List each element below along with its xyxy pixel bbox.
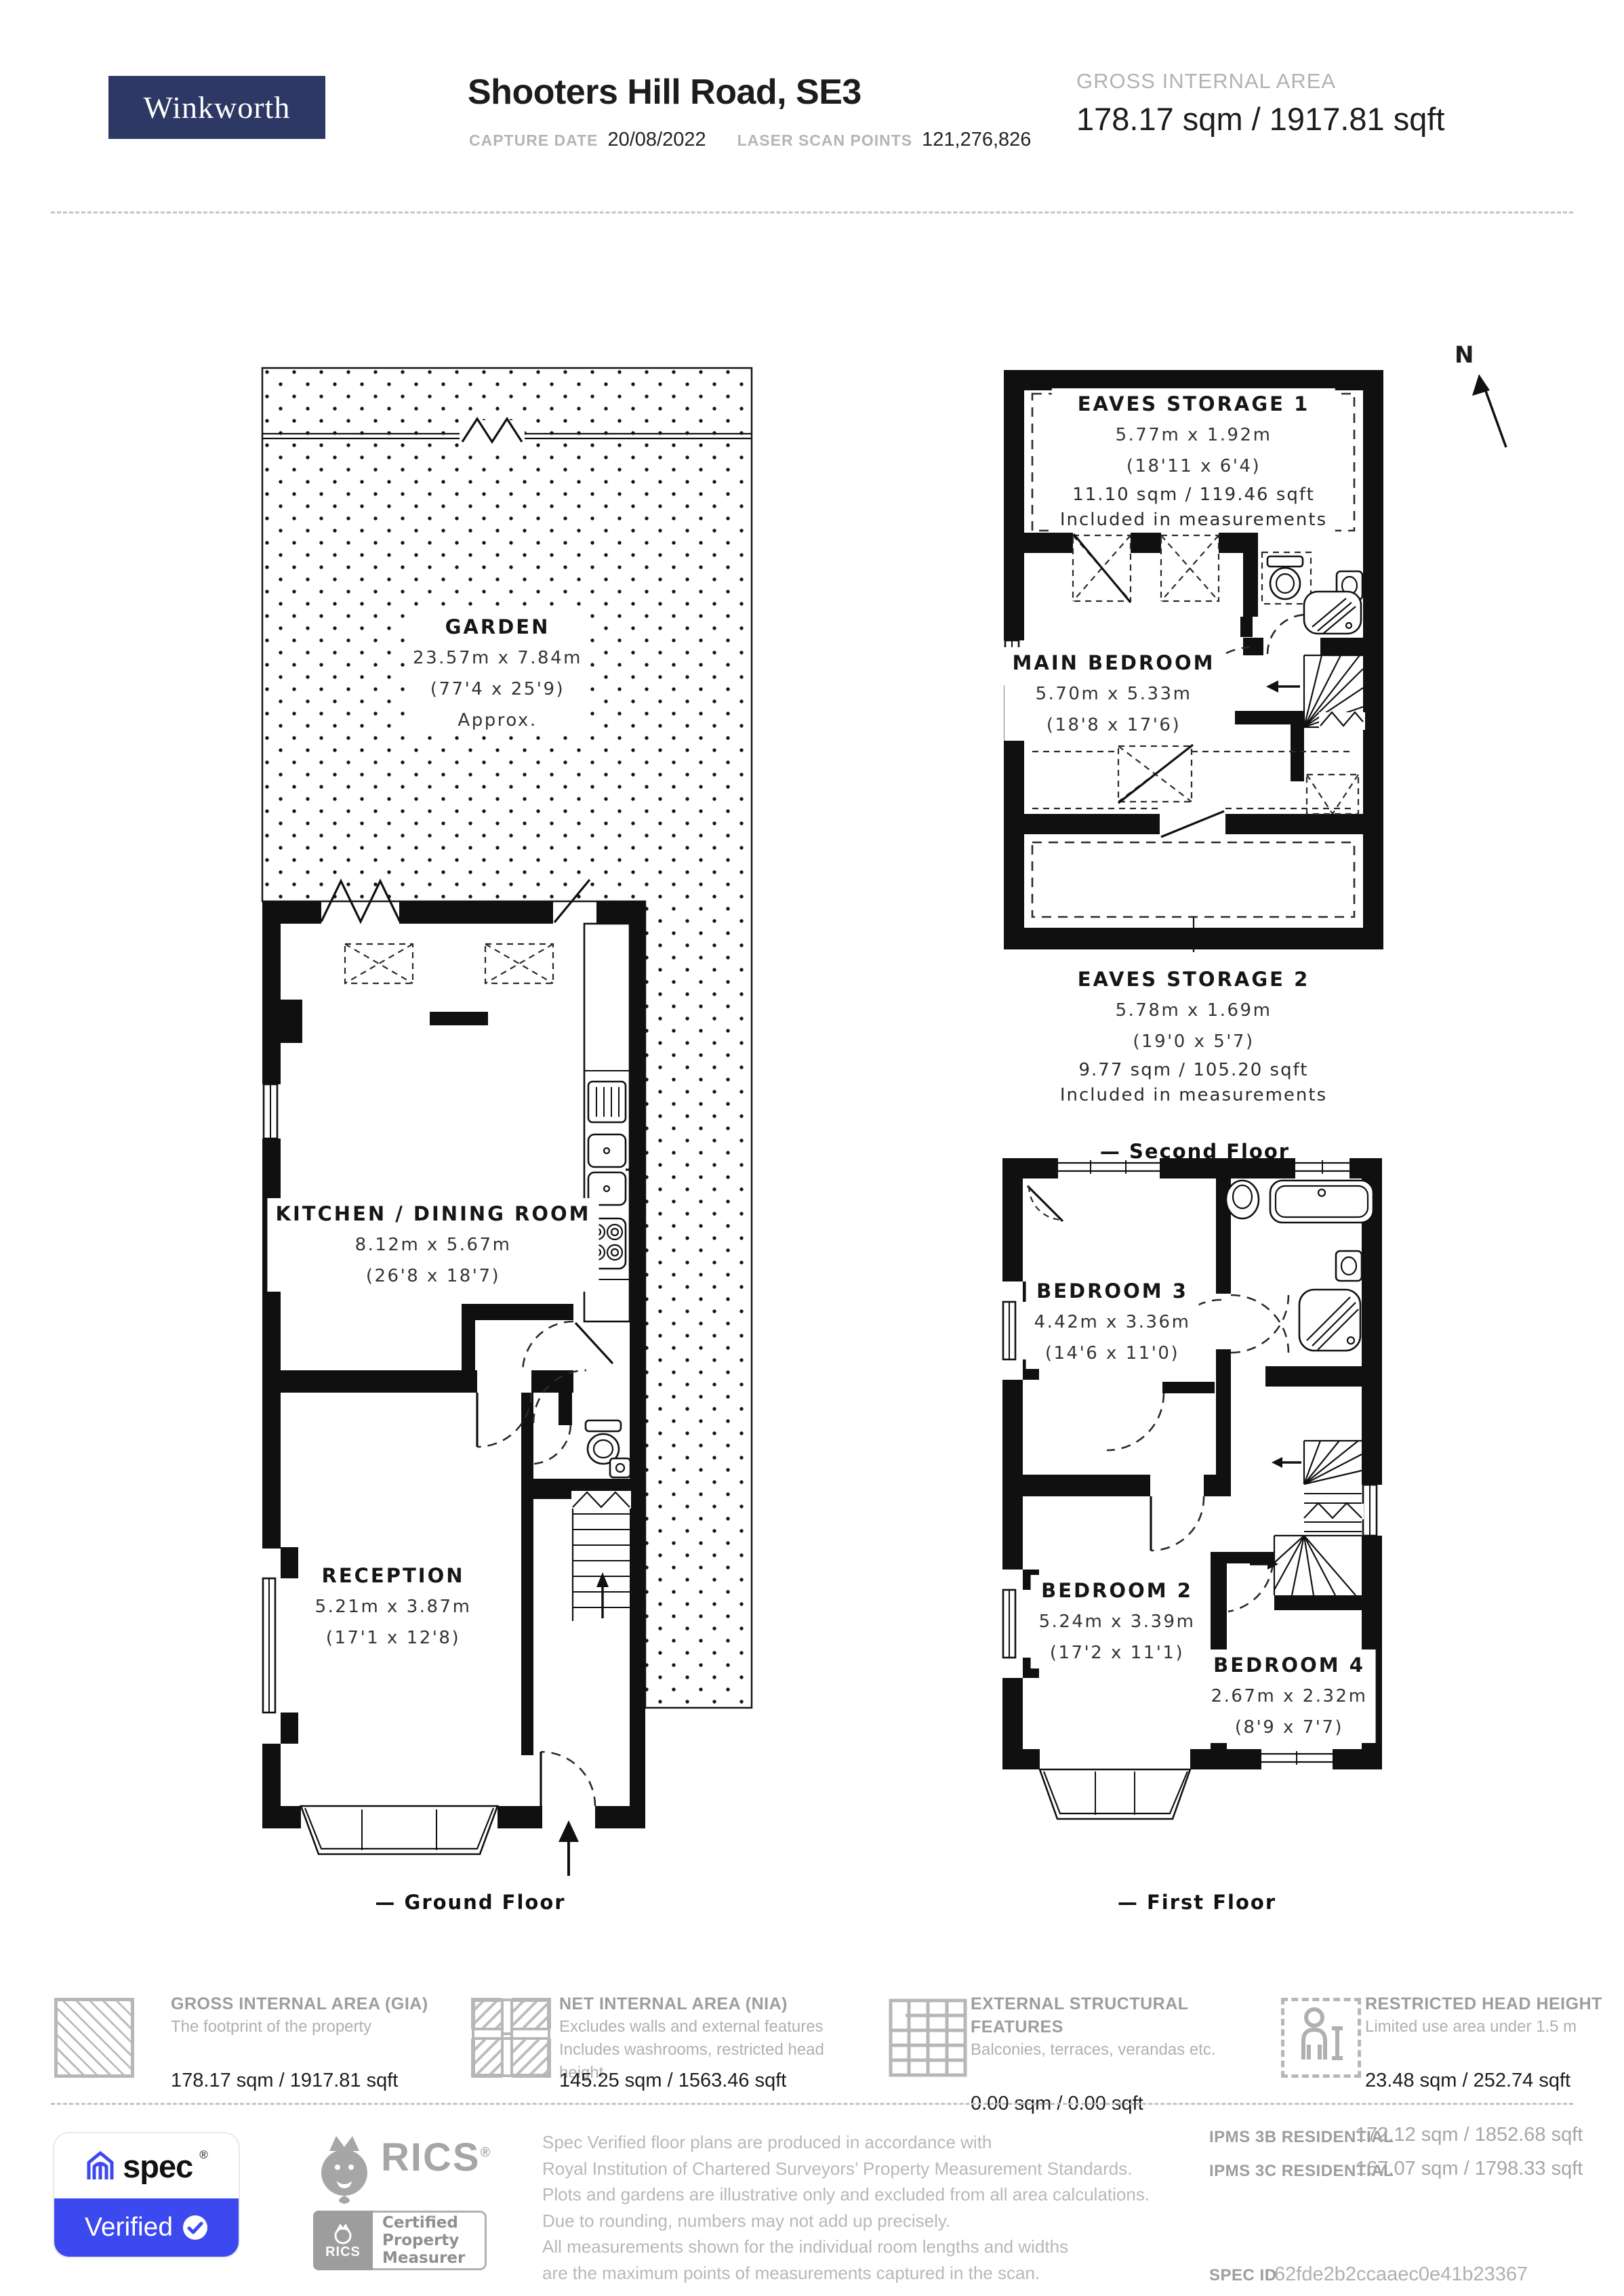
reception-label: RECEPTION 5.21m x 3.87m (17'1 x 12'8) [307, 1560, 480, 1654]
spec-brand: spec [123, 2148, 192, 2185]
stairs-icon [571, 1491, 631, 1621]
basin-icon [1336, 1251, 1362, 1281]
spec-verified-badge: spec® Verified [54, 2133, 239, 2257]
floorplan-sheet: Winkworth Shooters Hill Road, SE3 CAPTUR… [0, 0, 1624, 2296]
legend-restricted: RESTRICTED HEAD HEIGHT Limited use area … [1365, 1992, 1624, 2092]
bay-window-icon [301, 1806, 498, 1854]
gross-internal-area-value: 178.17 sqm / 1917.81 sqft [1076, 100, 1444, 138]
check-icon [182, 2215, 208, 2240]
capture-meta: CAPTURE DATE20/08/2022LASER SCAN POINTS1… [469, 129, 1062, 151]
winkworth-logo-text: Winkworth [144, 89, 291, 125]
ground-floor-plan: GARDEN 23.57m x 7.84m (77'4 x 25'9) Appr… [260, 366, 754, 1891]
bedroom2-door-arc [1151, 1496, 1204, 1551]
capture-date-value: 20/08/2022 [607, 129, 706, 150]
divider-bottom [51, 2103, 1573, 2105]
wc-door-arc [534, 1425, 571, 1464]
laser-scan-label: LASER SCAN POINTS [737, 131, 913, 149]
north-arrow-icon [1464, 371, 1518, 453]
first-floor-drawing [1000, 1156, 1394, 1854]
legend-gia: GROSS INTERNAL AREA (GIA) The footprint … [171, 1992, 462, 2092]
eaves-storage-2-label: EAVES STORAGE 2 5.78m x 1.69m (19'0 x 5'… [1052, 964, 1335, 1107]
nia-icon [471, 1998, 551, 2078]
front-door-arc [541, 1752, 595, 1806]
ipms-3b-value: 172.12 sqm / 1852.68 sqft [1356, 2124, 1583, 2146]
bath-icon [1270, 1181, 1373, 1223]
ground-floor-drawing [260, 366, 754, 1891]
wc-sink-icon [610, 1458, 630, 1477]
restricted-height-icon [1281, 1998, 1361, 2078]
disclaimer-text: Spec Verified floor plans are produced i… [542, 2129, 1166, 2286]
pedestal-sink-icon [1226, 1181, 1259, 1218]
garden-label: GARDEN 23.57m x 7.84m (77'4 x 25'9) Appr… [405, 611, 590, 736]
bathroom-door-arc [1267, 615, 1307, 654]
ground-floor-label: — Ground Floor [375, 1891, 565, 1914]
laser-scan-value: 121,276,826 [922, 129, 1031, 150]
legend-external: EXTERNAL STRUCTURAL FEATURES Balconies, … [971, 1992, 1262, 2115]
legend-nia: NET INTERNAL AREA (NIA) Excludes walls a… [559, 1992, 851, 2092]
first-floor-plan: BEDROOM 3 4.42m x 3.36m (14'6 x 11'0) BE… [1000, 1156, 1394, 1854]
first-floor-label: — First Floor [1118, 1891, 1276, 1914]
rics-mini-lion-icon [331, 2221, 354, 2244]
capture-date-label: CAPTURE DATE [469, 131, 598, 149]
corridor-door-arc [1107, 1393, 1164, 1450]
rics-brand: RICS® [381, 2135, 491, 2180]
garden-area [262, 368, 752, 1708]
toilet-icon [1262, 552, 1311, 604]
page-title: Shooters Hill Road, SE3 [468, 72, 861, 112]
spec-reg: ® [199, 2148, 208, 2162]
bedroom3-label: BEDROOM 3 4.42m x 3.36m (14'6 x 11'0) [1026, 1275, 1199, 1369]
skylight-icon [345, 944, 553, 983]
rics-badge-brand: RICS [325, 2244, 361, 2260]
bedroom4-door-arc [1228, 1563, 1273, 1612]
closet-door-icon [1028, 1186, 1063, 1221]
stairs-icon [1250, 1441, 1364, 1595]
winkworth-logo: Winkworth [108, 76, 325, 139]
toilet-icon [586, 1420, 621, 1464]
main-bedroom-label: MAIN BEDROOM 5.70m x 5.33m (18'8 x 17'6) [1004, 647, 1223, 741]
kitchen-label: KITCHEN / DINING ROOM 8.12m x 5.67m (26'… [267, 1198, 598, 1292]
bay-window-icon [1040, 1769, 1190, 1819]
skylight-icon [1032, 746, 1354, 808]
rics-certified-badge: RICS Certified Property Measurer [313, 2211, 487, 2270]
eaves-storage-2-zone [1032, 842, 1354, 917]
spec-house-icon [85, 2150, 116, 2181]
shower-icon [1304, 592, 1361, 634]
fridge-icon [588, 1082, 626, 1122]
spec-id-label: SPEC ID [1209, 2266, 1277, 2285]
bedroom4-label: BEDROOM 4 2.67m x 2.32m (8'9 x 7'7) [1203, 1649, 1376, 1743]
rics-lion-icon [313, 2133, 375, 2204]
eaves-storage-1-label: EAVES STORAGE 1 5.77m x 1.92m (18'11 x 6… [1052, 388, 1335, 532]
shower-icon [1299, 1290, 1360, 1351]
kitchen-door-arc [523, 1321, 573, 1372]
gia-icon [54, 1998, 134, 2078]
entrance-arrow-icon [559, 1820, 579, 1876]
north-label: N [1455, 342, 1474, 369]
gross-internal-area-label: GROSS INTERNAL AREA [1076, 69, 1336, 94]
bedroom2-label: BEDROOM 2 5.24m x 3.39m (17'2 x 11'1) [1031, 1575, 1204, 1668]
bathroom-door-arc [1231, 1295, 1288, 1353]
second-floor-plan: EAVES STORAGE 1 5.77m x 1.92m (18'11 x 6… [1002, 368, 1385, 956]
ipms-3c-value: 167.07 sqm / 1798.33 sqft [1356, 2158, 1583, 2180]
rics-reg: ® [481, 2146, 492, 2160]
external-features-icon [888, 1998, 968, 2078]
spec-verified-text: Verified [85, 2213, 173, 2242]
spec-id-value: 62fde2b2ccaaec0e41b23367 [1274, 2263, 1528, 2286]
divider-top [51, 211, 1573, 213]
